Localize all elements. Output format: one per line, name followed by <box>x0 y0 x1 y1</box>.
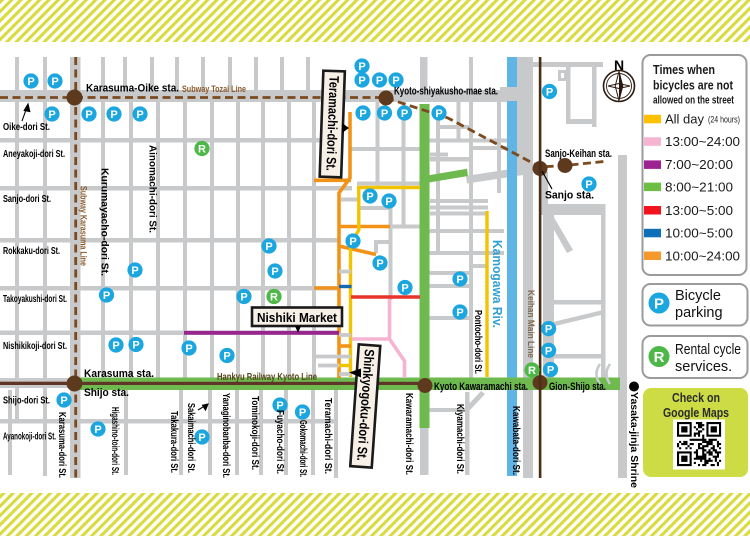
svg-text:P: P <box>103 290 110 302</box>
svg-text:Yasaka-jinja Shrine: Yasaka-jinja Shrine <box>628 392 639 488</box>
svg-text:P: P <box>385 196 392 208</box>
svg-text:All day: All day <box>665 112 705 127</box>
svg-text:P: P <box>271 266 278 278</box>
svg-text:Bicycle: Bicycle <box>675 288 721 304</box>
svg-text:Subway Tozai Line: Subway Tozai Line <box>182 84 246 95</box>
svg-text:P: P <box>456 307 463 319</box>
svg-text:Ainomachi-dori St.: Ainomachi-dori St. <box>147 145 158 233</box>
svg-text:Nishiki Market: Nishiki Market <box>257 311 338 325</box>
svg-text:Karasuma sta.: Karasuma sta. <box>84 368 154 380</box>
svg-text:Shijo sta.: Shijo sta. <box>84 387 129 399</box>
svg-text:P: P <box>545 324 552 336</box>
svg-text:13:00~5:00: 13:00~5:00 <box>665 203 733 218</box>
svg-text:services.: services. <box>675 359 732 375</box>
svg-text:P: P <box>198 432 205 444</box>
svg-text:(24 hours): (24 hours) <box>708 115 740 126</box>
svg-text:parking: parking <box>675 305 723 321</box>
svg-text:P: P <box>185 343 192 355</box>
svg-text:Ayanokoji-dori St.: Ayanokoji-dori St. <box>3 432 56 443</box>
svg-text:P: P <box>401 108 408 120</box>
svg-text:Sanjo-dori St.: Sanjo-dori St. <box>3 194 51 205</box>
svg-text:10:00~24:00: 10:00~24:00 <box>665 248 740 263</box>
svg-text:P: P <box>547 365 554 377</box>
svg-text:R: R <box>198 144 206 156</box>
svg-text:Yanaginobanba-dori St.: Yanaginobanba-dori St. <box>220 393 231 478</box>
svg-text:P: P <box>112 340 119 352</box>
svg-text:Karasuma-dori St.: Karasuma-dori St. <box>56 412 67 478</box>
svg-text:Aneyakoji-dori St.: Aneyakoji-dori St. <box>3 149 65 160</box>
svg-text:P: P <box>376 258 383 270</box>
svg-text:P: P <box>546 87 553 99</box>
svg-text:P: P <box>110 109 117 121</box>
svg-text:P: P <box>299 407 306 419</box>
svg-text:Subway Karasuma Line: Subway Karasuma Line <box>78 186 89 266</box>
svg-text:P: P <box>376 75 383 87</box>
svg-text:Sakaimachi-dori St.: Sakaimachi-dori St. <box>185 403 196 473</box>
svg-text:P: P <box>359 108 366 120</box>
svg-text:P: P <box>358 75 365 87</box>
svg-text:P: P <box>358 61 365 73</box>
svg-text:P: P <box>223 351 230 363</box>
svg-text:Tominokoji-dori St.: Tominokoji-dori St. <box>249 396 260 470</box>
svg-text:Kawabata-dori St.: Kawabata-dori St. <box>510 406 521 475</box>
svg-text:7:00~20:00: 7:00~20:00 <box>665 157 733 172</box>
svg-text:Gokomachi-dori St.: Gokomachi-dori St. <box>297 420 308 477</box>
svg-text:Kamogawa Riv.: Kamogawa Riv. <box>490 240 505 328</box>
svg-text:R: R <box>528 365 536 377</box>
svg-text:Takoyakushi-dori St.: Takoyakushi-dori St. <box>3 294 67 305</box>
svg-text:Times when: Times when <box>653 63 715 77</box>
svg-text:Check on: Check on <box>672 391 720 405</box>
svg-text:Rokkaku-dori St.: Rokkaku-dori St. <box>3 246 60 257</box>
svg-text:P: P <box>366 191 373 203</box>
svg-text:Gion-Shijo sta.: Gion-Shijo sta. <box>549 381 606 393</box>
svg-text:Teramachi-dori St.: Teramachi-dori St. <box>322 398 333 474</box>
svg-text:P: P <box>94 424 101 436</box>
svg-text:P: P <box>349 236 356 248</box>
svg-text:Kyoto Kawaramachi sta.: Kyoto Kawaramachi sta. <box>434 381 528 393</box>
svg-text:8:00~21:00: 8:00~21:00 <box>665 179 733 194</box>
svg-text:Takakura-dori St.: Takakura-dori St. <box>168 411 179 473</box>
svg-text:P: P <box>132 340 139 352</box>
svg-text:Google Maps: Google Maps <box>663 406 729 420</box>
svg-text:P: P <box>401 283 408 295</box>
svg-text:P: P <box>381 108 388 120</box>
svg-text:Higashino-toin-dori St.: Higashino-toin-dori St. <box>109 407 120 475</box>
svg-text:Fuyacho-dori St.: Fuyacho-dori St. <box>274 410 285 474</box>
svg-text:bicycles are not: bicycles are not <box>653 79 734 93</box>
svg-text:Hankyu Railway Kyoto Line: Hankyu Railway Kyoto Line <box>217 372 317 383</box>
svg-text:13:00~24:00: 13:00~24:00 <box>665 134 740 149</box>
svg-text:Kiyamachi-dori St.: Kiyamachi-dori St. <box>454 404 465 474</box>
svg-text:Kyoto-shiyakusho-mae sta.: Kyoto-shiyakusho-mae sta. <box>394 86 498 98</box>
svg-text:P: P <box>654 296 664 313</box>
svg-text:Rental cycle: Rental cycle <box>675 342 741 358</box>
svg-text:Kawaramachi-dori St.: Kawaramachi-dori St. <box>403 393 414 475</box>
svg-text:Karasuma-Oike sta.: Karasuma-Oike sta. <box>86 83 179 95</box>
svg-text:P: P <box>51 76 58 88</box>
svg-text:P: P <box>60 395 67 407</box>
svg-text:Oike-dori St.: Oike-dori St. <box>3 122 50 133</box>
svg-text:Shijo-dori St.: Shijo-dori St. <box>3 396 50 407</box>
svg-text:N: N <box>614 57 624 73</box>
svg-text:Kurumayacho-dori St.: Kurumayacho-dori St. <box>99 168 110 276</box>
svg-text:P: P <box>545 345 552 357</box>
svg-text:Nishikikoji-dori St.: Nishikikoji-dori St. <box>3 341 67 352</box>
svg-text:P: P <box>85 109 92 121</box>
svg-text:Pontocho-dori St.: Pontocho-dori St. <box>472 310 483 374</box>
svg-text:P: P <box>131 265 138 277</box>
svg-text:P: P <box>27 76 34 88</box>
svg-text:P: P <box>48 109 55 121</box>
svg-text:Sanjo-Keihan sta.: Sanjo-Keihan sta. <box>545 148 612 160</box>
svg-text:P: P <box>136 109 143 121</box>
svg-text:R: R <box>270 292 278 304</box>
svg-text:P: P <box>456 274 463 286</box>
svg-text:P: P <box>435 108 442 120</box>
svg-text:Keihan Main Line: Keihan Main Line <box>525 290 536 358</box>
svg-text:R: R <box>654 349 665 366</box>
svg-text:10:00~5:00: 10:00~5:00 <box>665 226 733 241</box>
svg-text:P: P <box>240 292 247 304</box>
svg-text:P: P <box>265 241 272 253</box>
svg-text:allowed on the street: allowed on the street <box>653 95 734 107</box>
svg-text:Sanjo sta.: Sanjo sta. <box>545 190 594 202</box>
